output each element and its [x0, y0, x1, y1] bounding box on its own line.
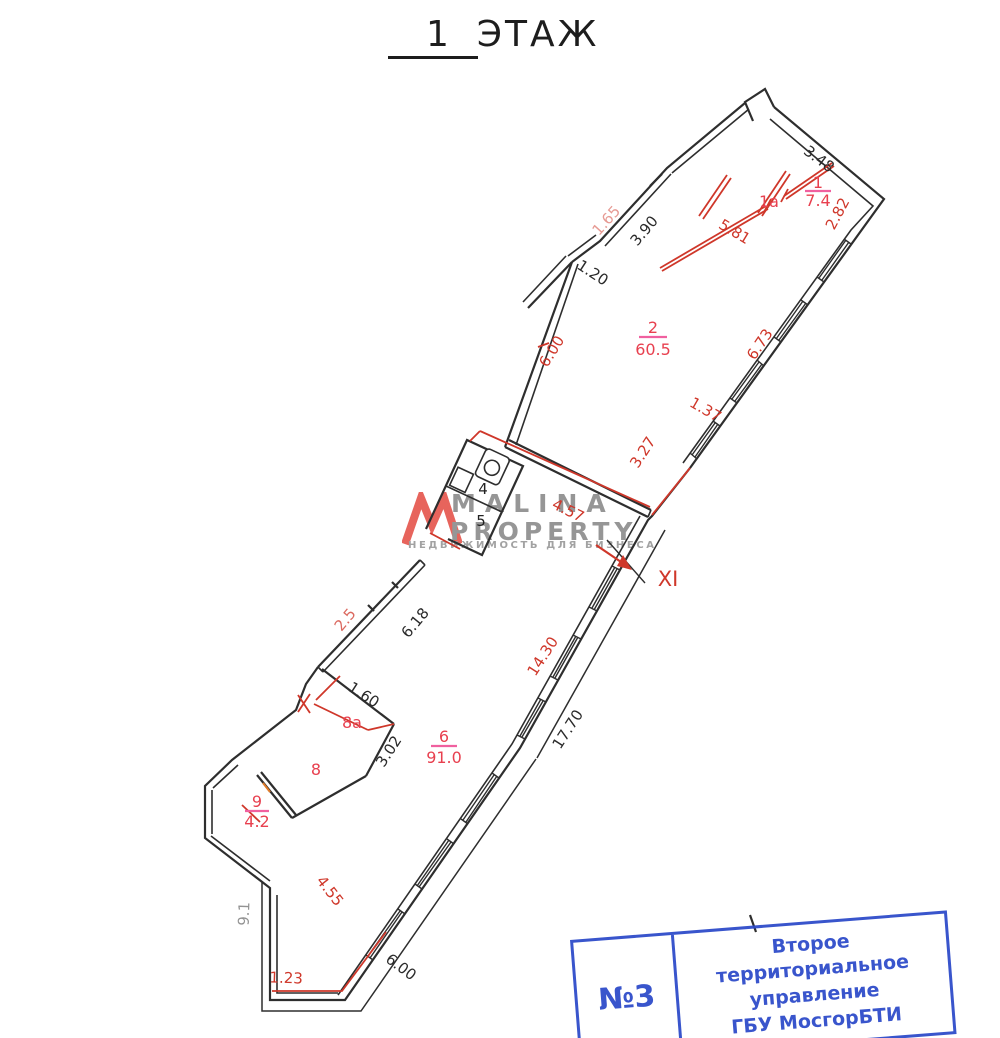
title-floor-word: ЭТАЖ: [477, 14, 600, 55]
dim-327-label: 3.27: [626, 433, 659, 471]
dim-120-label: 1.20: [574, 256, 612, 289]
page-title: 1 ЭТАЖ: [388, 14, 648, 55]
dim-455-label: 4.55: [313, 872, 348, 909]
room-9-area: 4.2: [244, 812, 269, 831]
room-4-number: 4: [478, 480, 488, 498]
dim-137-label: 1.37: [687, 394, 725, 426]
dim-faint-bottom-left-label: 9.1: [235, 902, 254, 926]
room-1-number: 1: [813, 173, 823, 192]
red-partitions: [242, 163, 834, 991]
dim-123-label: 1.23: [269, 968, 303, 987]
floorplan-page: MALINA PROPERTY НЕДВИЖИМОСТЬ ДЛЯ БИЗНЕСА: [0, 0, 1000, 1038]
dim-600-left-label: 6.00: [535, 332, 568, 370]
outer-walls: [205, 89, 884, 1000]
stamp-organization: Второе территориальное управление ГБУ Мо…: [674, 914, 953, 1038]
dim-faint-left-label: 2.5: [331, 605, 360, 635]
room-6-area: 91.0: [426, 748, 462, 767]
dim-1770-label: 17.70: [549, 706, 587, 752]
room-1a-number: 1а: [759, 192, 779, 211]
door-swing-mark: [263, 783, 270, 792]
title-floor-number: 1: [426, 14, 449, 55]
dim-160-label: 1.60: [345, 678, 383, 711]
dim-600-bottom-label: 6.00: [382, 950, 420, 984]
room-6-number: 6: [439, 727, 449, 746]
dim-302-label: 3.02: [372, 732, 405, 770]
room-5-number: 5: [476, 512, 486, 530]
room-2-area: 60.5: [635, 340, 671, 359]
entrance-xi-label: XI: [658, 567, 679, 591]
dim-673-label: 6.73: [743, 325, 777, 363]
title-underline: [388, 56, 478, 59]
stamp-number: №3: [573, 935, 683, 1038]
room-9-number: 9: [252, 792, 262, 811]
dim-618-label: 6.18: [398, 604, 433, 641]
floorplan-drawing: 3.48 3.90 1.20 1.60 3.02 6.18 17.70 6.00…: [0, 0, 1000, 1038]
inner-wall-lines: [211, 109, 873, 995]
dim-457-label: 4.57: [549, 495, 587, 526]
room-2-number: 2: [648, 318, 658, 337]
room-8-number: 8: [311, 760, 321, 779]
room-1-area: 7.4: [805, 191, 830, 210]
room-8a-number: 8а: [342, 713, 362, 732]
